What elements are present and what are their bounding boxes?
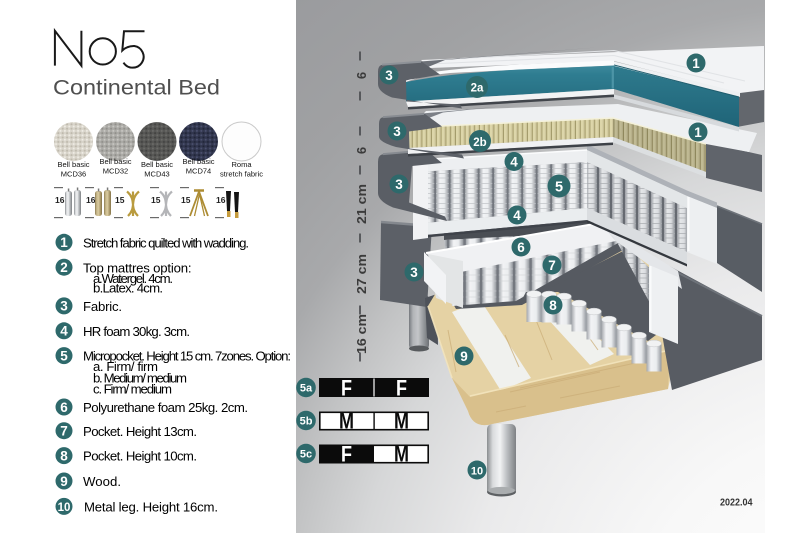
svg-text:Metal leg. Height 16cm.: Metal leg. Height 16cm. <box>84 500 218 515</box>
svg-text:2022.04: 2022.04 <box>720 498 753 509</box>
svg-text:HR foam 30kg. 3cm.: HR foam 30kg. 3cm. <box>83 324 190 339</box>
svg-text:2: 2 <box>60 260 68 275</box>
svg-text:8: 8 <box>60 448 68 463</box>
svg-text:stretch fabric: stretch fabric <box>220 170 263 179</box>
svg-text:6: 6 <box>60 400 68 415</box>
svg-text:16: 16 <box>216 195 226 205</box>
svg-text:Continental Bed: Continental Bed <box>53 77 220 100</box>
svg-text:5b: 5b <box>300 416 313 428</box>
svg-text:3: 3 <box>60 299 68 314</box>
svg-text:3: 3 <box>395 177 403 192</box>
svg-text:8: 8 <box>549 298 557 313</box>
svg-text:Pocket. Height 13cm.: Pocket. Height 13cm. <box>83 424 197 439</box>
svg-text:F: F <box>341 442 352 467</box>
svg-text:1: 1 <box>692 56 700 71</box>
svg-text:6: 6 <box>517 240 525 255</box>
svg-text:16 cm: 16 cm <box>354 314 369 354</box>
svg-text:Bell basic: Bell basic <box>99 157 131 166</box>
svg-text:5c: 5c <box>300 449 312 461</box>
svg-text:MCD32: MCD32 <box>103 167 128 176</box>
svg-text:Fabric.: Fabric. <box>83 299 122 314</box>
svg-text:6: 6 <box>354 147 369 154</box>
svg-text:16: 16 <box>55 195 65 205</box>
svg-text:2a: 2a <box>471 83 484 95</box>
svg-text:9: 9 <box>60 474 68 489</box>
svg-text:Bell basic: Bell basic <box>182 157 214 166</box>
svg-text:M: M <box>394 409 409 434</box>
svg-text:15: 15 <box>151 195 161 205</box>
svg-text:M: M <box>339 409 354 434</box>
svg-text:Pocket. Height 10cm.: Pocket. Height 10cm. <box>83 449 197 464</box>
svg-text:MCD43: MCD43 <box>144 170 169 179</box>
svg-text:16: 16 <box>86 195 96 205</box>
svg-text:c. Firm/ medium: c. Firm/ medium <box>93 381 172 396</box>
svg-text:7: 7 <box>548 258 556 273</box>
svg-text:3: 3 <box>410 265 418 280</box>
svg-text:3: 3 <box>385 68 393 83</box>
svg-text:15: 15 <box>115 195 125 205</box>
svg-text:Bell basic: Bell basic <box>141 160 173 169</box>
svg-text:1: 1 <box>60 235 68 250</box>
svg-text:27 cm: 27 cm <box>354 254 369 294</box>
svg-text:Roma: Roma <box>231 160 252 169</box>
svg-text:4: 4 <box>513 208 521 223</box>
svg-text:1: 1 <box>694 125 702 140</box>
svg-text:M: M <box>394 442 409 467</box>
svg-text:Stretch fabric quilted with wa: Stretch fabric quilted with wadding. <box>83 235 249 250</box>
svg-text:4: 4 <box>510 155 518 170</box>
svg-text:MCD74: MCD74 <box>186 167 211 176</box>
svg-text:6: 6 <box>354 72 369 79</box>
svg-text:15: 15 <box>181 195 191 205</box>
svg-text:b.Latex. 4cm.: b.Latex. 4cm. <box>93 281 163 296</box>
svg-text:9: 9 <box>460 349 468 364</box>
svg-text:5: 5 <box>555 180 563 196</box>
svg-text:3: 3 <box>393 124 401 139</box>
svg-text:7: 7 <box>60 424 68 439</box>
svg-text:F: F <box>341 376 352 401</box>
svg-text:10: 10 <box>58 502 71 514</box>
svg-text:10: 10 <box>471 466 483 478</box>
svg-text:21 cm: 21 cm <box>354 184 369 224</box>
svg-text:F: F <box>396 376 407 401</box>
svg-text:Polyurethane foam 25kg. 2cm.: Polyurethane foam 25kg. 2cm. <box>83 400 248 415</box>
svg-text:Bell basic: Bell basic <box>57 160 89 169</box>
svg-text:MCD36: MCD36 <box>61 170 86 179</box>
svg-text:5a: 5a <box>300 383 313 395</box>
svg-text:Wood.: Wood. <box>83 474 121 489</box>
svg-text:5: 5 <box>60 348 68 363</box>
svg-text:4: 4 <box>60 324 68 339</box>
svg-text:2b: 2b <box>473 137 486 149</box>
